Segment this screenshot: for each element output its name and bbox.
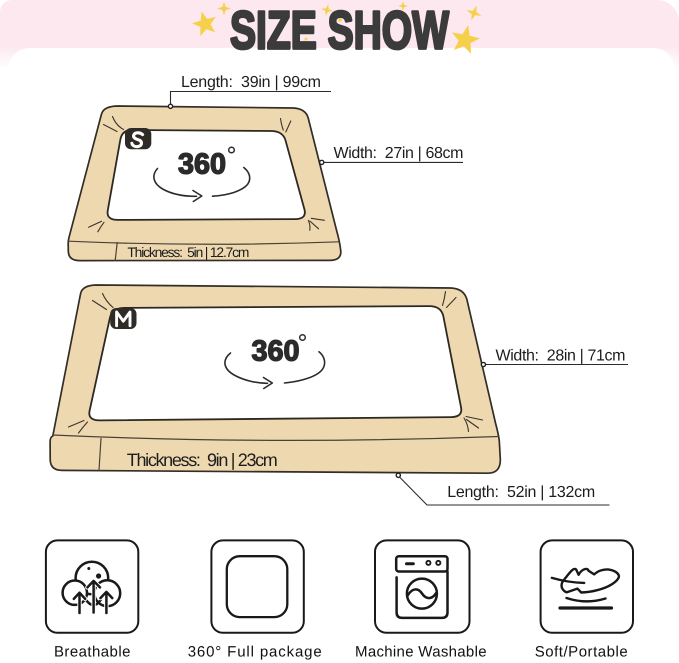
svg-text:Width: 28in | 71cm: Width: 28in | 71cm (496, 347, 626, 364)
svg-text:Length: 39in | 99cm: Length: 39in | 99cm (181, 74, 321, 91)
svg-text:SIZE SHOW: SIZE SHOW (230, 2, 449, 61)
svg-text:Breathable: Breathable (54, 644, 131, 661)
svg-text:Machine Washable: Machine Washable (355, 644, 487, 661)
svg-text:360° Full package: 360° Full package (188, 644, 322, 661)
svg-text:360: 360 (178, 149, 226, 181)
svg-text:Thickness: 5in | 12.7cm: Thickness: 5in | 12.7cm (127, 245, 249, 260)
svg-text:Width: 27in | 68cm: Width: 27in | 68cm (334, 145, 464, 162)
svg-text:Length: 52in | 132cm: Length: 52in | 132cm (447, 484, 595, 501)
svg-text:Thickness: 9in | 23cm: Thickness: 9in | 23cm (127, 450, 278, 470)
svg-text:360: 360 (252, 336, 300, 368)
svg-text:Soft/Portable: Soft/Portable (535, 644, 628, 661)
